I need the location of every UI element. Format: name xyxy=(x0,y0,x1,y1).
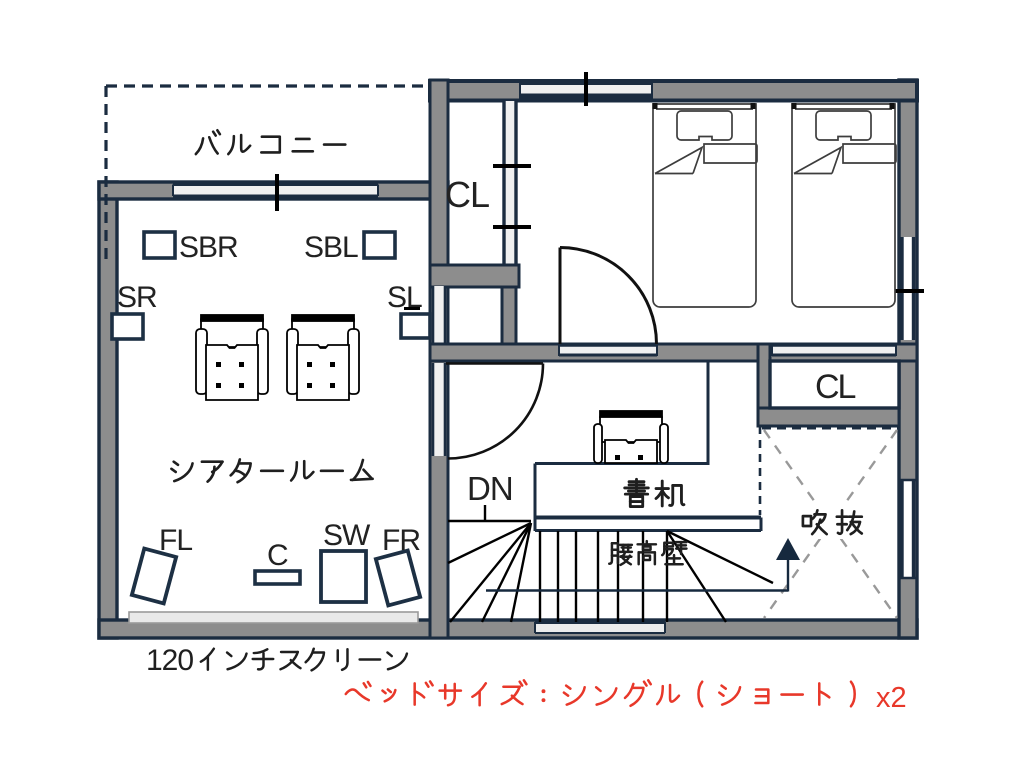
svg-text:SBR: SBR xyxy=(179,231,238,264)
svg-text:SR: SR xyxy=(117,281,157,314)
svg-text:FL: FL xyxy=(159,524,192,557)
svg-text:CL: CL xyxy=(445,174,489,215)
svg-text:DN: DN xyxy=(467,470,513,507)
svg-text:SBL: SBL xyxy=(304,231,358,264)
svg-text:FR: FR xyxy=(382,524,420,557)
svg-text:x2: x2 xyxy=(876,682,907,714)
svg-text:C: C xyxy=(267,539,289,572)
svg-text:CL: CL xyxy=(815,368,856,406)
svg-text:SL: SL xyxy=(387,281,422,314)
svg-text:SW: SW xyxy=(323,519,371,552)
svg-text:120: 120 xyxy=(146,644,193,677)
